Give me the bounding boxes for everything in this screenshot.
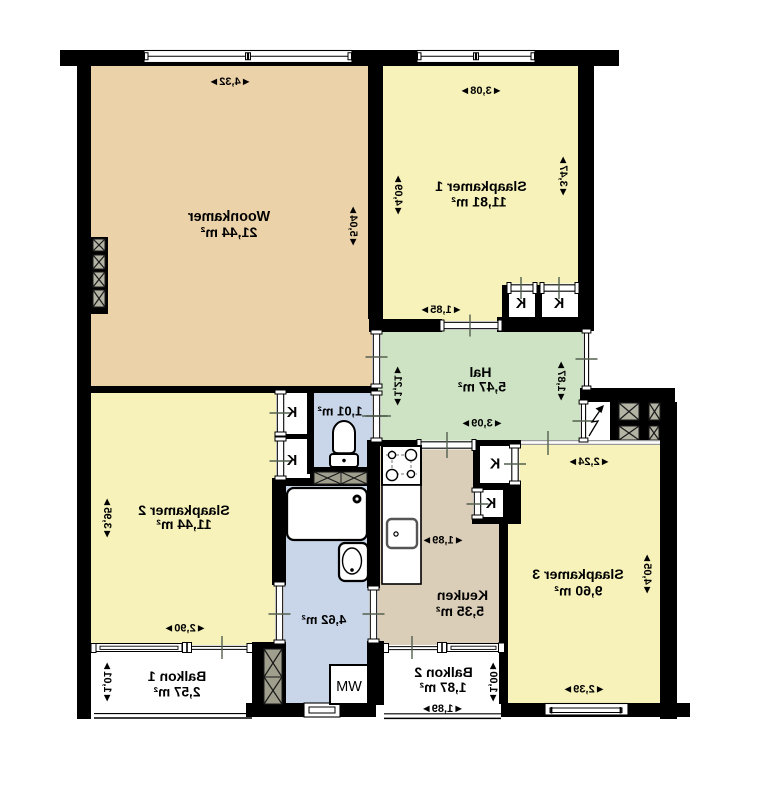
svg-text:5,35 m²: 5,35 m² — [436, 603, 485, 619]
svg-text:◄3,95►: ◄3,95► — [101, 496, 113, 539]
svg-text:K: K — [485, 496, 496, 512]
svg-text:◄3,08►: ◄3,08► — [459, 85, 502, 97]
svg-text:K: K — [489, 457, 500, 473]
svg-text:9,60 m²: 9,60 m² — [554, 582, 603, 598]
svg-text:4,62 m²: 4,62 m² — [301, 612, 346, 627]
svg-text:K: K — [515, 296, 526, 312]
svg-text:5,47 m²: 5,47 m² — [458, 378, 507, 394]
svg-text:◄2,24►: ◄2,24► — [567, 456, 610, 468]
svg-text:Keuken: Keuken — [437, 588, 488, 604]
svg-text:Balkon 2: Balkon 2 — [414, 664, 473, 680]
svg-text:◄4,32►: ◄4,32► — [208, 76, 251, 88]
svg-text:Balkon 1: Balkon 1 — [148, 668, 207, 684]
svg-text:21,44 m²: 21,44 m² — [200, 225, 257, 241]
svg-text:◄4,05►: ◄4,05► — [641, 552, 653, 595]
svg-text:◄2,39►: ◄2,39► — [562, 683, 605, 695]
svg-text:11,44 m²: 11,44 m² — [156, 516, 212, 532]
svg-text:◄1,89►: ◄1,89► — [421, 534, 464, 546]
svg-text:K: K — [553, 296, 564, 312]
svg-text:◄1,85►: ◄1,85► — [419, 304, 462, 316]
svg-text:◄2,90►: ◄2,90► — [163, 622, 206, 634]
svg-text:◄5,04►: ◄5,04► — [347, 204, 359, 247]
svg-text:◄1,89►: ◄1,89► — [421, 703, 464, 715]
svg-text:K: K — [286, 453, 297, 469]
svg-text:◄3,09►: ◄3,09► — [460, 417, 503, 429]
svg-text:K: K — [286, 405, 297, 421]
svg-text:1,01 m²: 1,01 m² — [317, 404, 362, 419]
svg-text:◄1,87►: ◄1,87► — [555, 359, 567, 402]
svg-text:WM: WM — [336, 679, 362, 695]
svg-text:◄1,00►: ◄1,00► — [487, 660, 499, 703]
svg-text:◄4,09►: ◄4,09► — [392, 173, 404, 216]
svg-text:◄1,01►: ◄1,01► — [101, 660, 113, 703]
svg-text:◄3,47►: ◄3,47► — [557, 154, 569, 197]
svg-text:Woonkamer: Woonkamer — [188, 209, 270, 225]
svg-text:1,87 m²: 1,87 m² — [419, 680, 466, 695]
svg-text:◄1,21►: ◄1,21► — [392, 364, 404, 407]
svg-text:Slaapkamer 3: Slaapkamer 3 — [532, 567, 624, 583]
svg-text:11,81 m²: 11,81 m² — [451, 193, 507, 209]
svg-text:2,57 m²: 2,57 m² — [153, 684, 200, 699]
